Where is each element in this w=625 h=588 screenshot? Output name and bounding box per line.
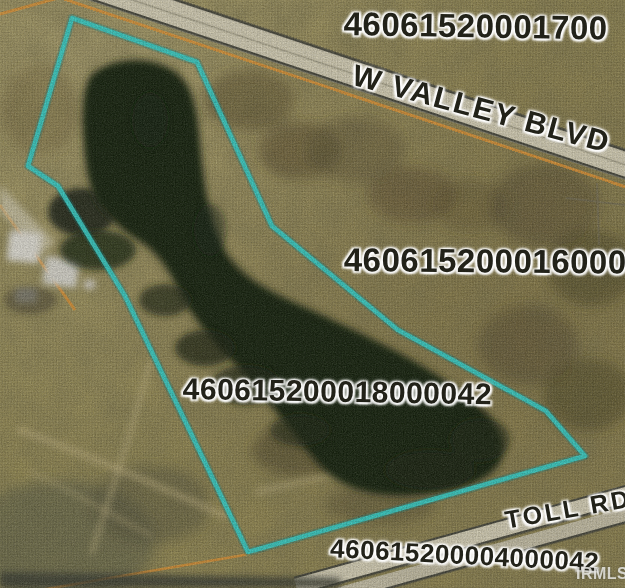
parcel-label-north: 46061520001700 (343, 7, 607, 45)
parcel-label-subject: 460615200018000042 (182, 374, 492, 409)
noise-overlay (0, 0, 625, 588)
parcel-label-east: 4606152000160000 (344, 243, 625, 279)
mls-aerial-parcel-map: 46061520001700 W VALLEY BLVD 46061520001… (0, 0, 625, 588)
irmls-watermark: IRMLS (576, 565, 625, 583)
aerial-imagery (0, 0, 625, 588)
